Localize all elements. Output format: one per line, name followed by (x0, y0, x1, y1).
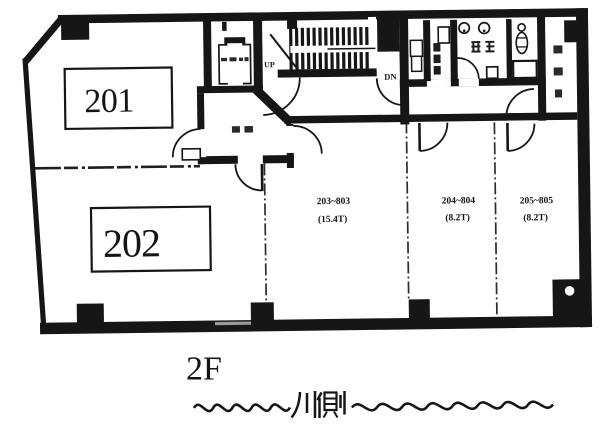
svg-text:(8.2T): (8.2T) (445, 212, 470, 223)
svg-text:204~804: 204~804 (442, 196, 476, 206)
svg-text:201: 201 (84, 83, 134, 121)
svg-text:2F: 2F (186, 351, 222, 388)
svg-text:203~803: 203~803 (317, 197, 351, 207)
svg-text:202: 202 (103, 220, 161, 266)
svg-text:205~805: 205~805 (520, 196, 554, 206)
svg-text:DN: DN (384, 72, 397, 82)
svg-text:(8.2T): (8.2T) (523, 212, 548, 223)
svg-text:(15.4T): (15.4T) (318, 214, 347, 225)
svg-text:UP: UP (264, 60, 275, 69)
